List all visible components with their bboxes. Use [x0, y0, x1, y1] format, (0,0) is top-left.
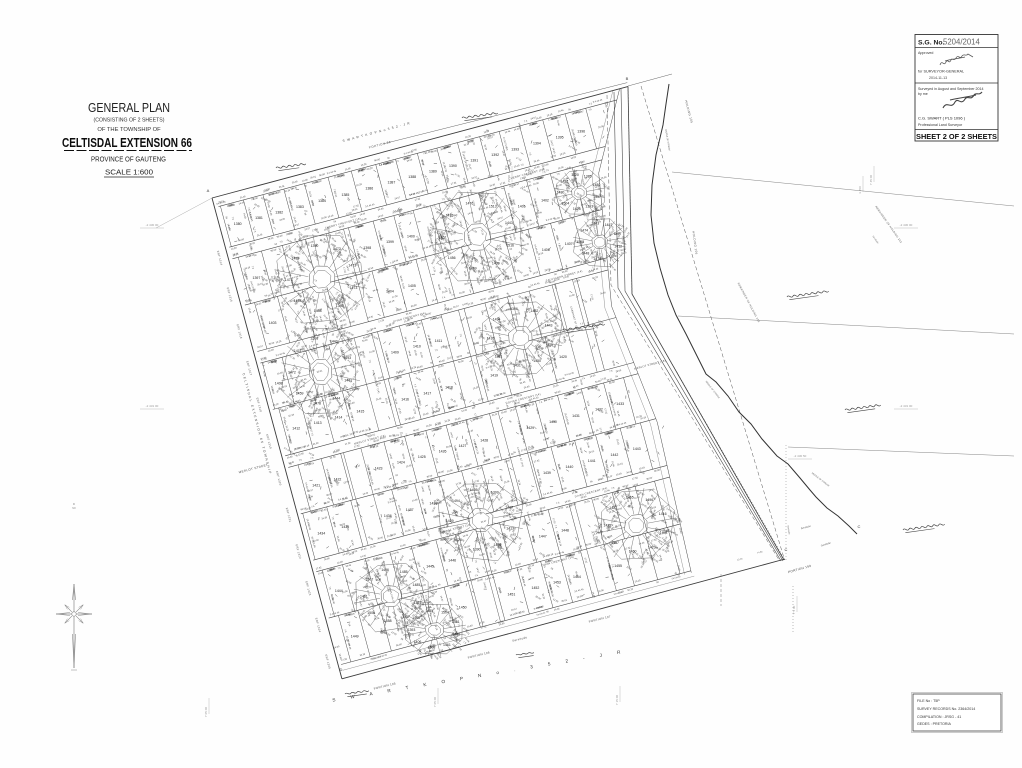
- svg-text:1421: 1421: [312, 483, 320, 487]
- svg-text:Y 5 00: Y 5 00: [792, 605, 796, 614]
- svg-text:1504: 1504: [441, 611, 449, 615]
- svg-text:1469: 1469: [469, 267, 477, 271]
- svg-text:1452: 1452: [439, 235, 447, 239]
- svg-text:1386: 1386: [365, 187, 373, 191]
- svg-text:2014-11-13: 2014-11-13: [929, 76, 947, 80]
- svg-text:1445: 1445: [426, 565, 434, 569]
- svg-text:SCALE 1:600: SCALE 1:600: [105, 170, 153, 177]
- svg-text:1450: 1450: [459, 606, 467, 610]
- svg-text:1412: 1412: [614, 245, 622, 249]
- svg-text:1439: 1439: [492, 262, 500, 266]
- svg-text:1419: 1419: [490, 374, 498, 378]
- svg-text:1455: 1455: [614, 564, 622, 568]
- svg-text:1434: 1434: [317, 532, 325, 536]
- svg-text:1420: 1420: [559, 355, 567, 359]
- svg-text:1440: 1440: [566, 465, 574, 469]
- svg-text:1388: 1388: [408, 175, 416, 179]
- svg-text:1487: 1487: [605, 223, 613, 227]
- svg-text:1423: 1423: [648, 545, 656, 549]
- svg-text:1405: 1405: [470, 488, 478, 492]
- svg-text:1516: 1516: [506, 244, 514, 248]
- svg-text:1384: 1384: [413, 601, 421, 605]
- svg-text:1474: 1474: [580, 228, 588, 232]
- svg-text:1485: 1485: [425, 609, 433, 613]
- svg-text:1485: 1485: [400, 570, 408, 574]
- svg-text:PROVINCE OF GAUTENG: PROVINCE OF GAUTENG: [91, 155, 166, 164]
- svg-text:1402: 1402: [541, 198, 549, 202]
- svg-text:1428: 1428: [454, 538, 462, 542]
- svg-text:D: D: [340, 667, 343, 672]
- svg-text:NO: NO: [72, 507, 76, 510]
- svg-text:1450: 1450: [533, 359, 541, 363]
- svg-text:1493: 1493: [343, 356, 351, 360]
- svg-text:1443: 1443: [505, 221, 513, 225]
- svg-text:1516: 1516: [310, 337, 318, 341]
- svg-text:1441: 1441: [344, 379, 352, 383]
- svg-text:1499: 1499: [292, 256, 300, 260]
- svg-text:1408: 1408: [275, 382, 283, 386]
- svg-text:1384: 1384: [318, 199, 326, 203]
- svg-text:1416: 1416: [401, 397, 409, 401]
- svg-text:1444: 1444: [332, 397, 340, 401]
- svg-text:1473: 1473: [348, 264, 356, 268]
- svg-text:1429: 1429: [446, 519, 454, 523]
- svg-text:1401: 1401: [518, 205, 526, 209]
- svg-text:1413: 1413: [506, 526, 514, 530]
- svg-text:1476: 1476: [466, 201, 474, 205]
- svg-text:1496: 1496: [645, 498, 653, 502]
- svg-text:1472: 1472: [288, 370, 296, 374]
- svg-text:1394: 1394: [533, 142, 541, 146]
- svg-text:Y 05 00: Y 05 00: [433, 697, 437, 708]
- svg-text:1428: 1428: [480, 438, 488, 442]
- svg-text:1473: 1473: [350, 286, 358, 290]
- svg-text:1507: 1507: [366, 578, 374, 582]
- svg-text:1416: 1416: [659, 512, 667, 516]
- svg-text:-2 430 50: -2 430 50: [794, 454, 807, 458]
- svg-text:-2 430 00: -2 430 00: [146, 223, 159, 227]
- svg-text:1443: 1443: [633, 447, 641, 451]
- svg-text:by me: by me: [918, 92, 928, 96]
- svg-text:1406: 1406: [542, 248, 550, 252]
- svg-text:1448: 1448: [561, 529, 569, 533]
- svg-text:1411: 1411: [294, 349, 302, 353]
- svg-text:5204/2014: 5204/2014: [943, 38, 981, 47]
- svg-text:1393: 1393: [585, 204, 593, 208]
- svg-text:1396: 1396: [510, 307, 518, 311]
- svg-text:1449: 1449: [351, 635, 359, 639]
- svg-text:1424: 1424: [397, 461, 405, 465]
- svg-text:Y 45 00: Y 45 00: [507, 175, 511, 186]
- svg-text:A: A: [207, 188, 210, 193]
- svg-text:1423: 1423: [375, 467, 383, 471]
- svg-text:1438: 1438: [430, 502, 438, 506]
- svg-text:1404: 1404: [386, 290, 394, 294]
- svg-text:1447: 1447: [539, 534, 547, 538]
- svg-text:1480: 1480: [557, 191, 565, 195]
- svg-text:1426: 1426: [439, 450, 447, 454]
- svg-text:1395: 1395: [556, 136, 564, 140]
- svg-text:1380: 1380: [234, 222, 242, 226]
- svg-text:1465: 1465: [626, 496, 634, 500]
- svg-text:C: C: [858, 524, 861, 529]
- svg-text:1439: 1439: [543, 471, 551, 475]
- svg-text:1410: 1410: [413, 345, 421, 349]
- svg-text:1381: 1381: [495, 354, 503, 358]
- svg-text:1430: 1430: [549, 420, 557, 424]
- svg-text:1468: 1468: [412, 616, 420, 620]
- svg-text:S.G. No.: S.G. No.: [918, 40, 945, 47]
- svg-text:1431: 1431: [513, 363, 521, 367]
- svg-text:1393: 1393: [576, 240, 584, 244]
- svg-text:1494: 1494: [493, 318, 501, 322]
- svg-text:1467: 1467: [505, 506, 513, 510]
- svg-text:1461: 1461: [443, 643, 451, 647]
- svg-text:1427: 1427: [609, 506, 617, 510]
- svg-text:1422: 1422: [334, 478, 342, 482]
- svg-text:1381: 1381: [255, 216, 263, 220]
- svg-text:1432: 1432: [595, 408, 603, 412]
- svg-text:1441: 1441: [660, 531, 668, 535]
- svg-text:1442: 1442: [611, 453, 619, 457]
- svg-text:1456: 1456: [560, 179, 568, 183]
- svg-text:1473: 1473: [333, 247, 341, 251]
- svg-text:1390: 1390: [311, 244, 319, 248]
- svg-text:Approved: Approved: [918, 51, 933, 55]
- svg-text:3 450: 3 450: [858, 186, 862, 194]
- svg-text:1390: 1390: [473, 548, 481, 552]
- svg-text:1417: 1417: [423, 392, 431, 396]
- svg-text:1456: 1456: [448, 256, 456, 260]
- svg-text:1409: 1409: [391, 350, 399, 354]
- svg-text:1416: 1416: [487, 336, 495, 340]
- svg-text:1391: 1391: [470, 158, 478, 162]
- svg-text:1392: 1392: [491, 153, 499, 157]
- svg-text:-2 431 00: -2 431 00: [146, 404, 159, 408]
- svg-text:1385: 1385: [584, 174, 592, 178]
- svg-text:1452: 1452: [532, 586, 540, 590]
- svg-text:1437: 1437: [593, 195, 601, 199]
- svg-text:1443: 1443: [545, 324, 553, 328]
- svg-text:1497: 1497: [546, 343, 554, 347]
- svg-text:Y 05 00: Y 05 00: [204, 707, 208, 718]
- svg-text:1397: 1397: [611, 541, 619, 545]
- svg-text:1476: 1476: [593, 257, 601, 261]
- svg-text:1448: 1448: [582, 251, 590, 255]
- svg-text:Y 15 00: Y 15 00: [615, 695, 619, 706]
- svg-text:1444: 1444: [335, 589, 343, 593]
- svg-text:SHEET 2 OF 2 SHEETS: SHEET 2 OF 2 SHEETS: [916, 132, 997, 141]
- svg-text:FILE No : T5P: FILE No : T5P: [917, 699, 940, 703]
- svg-text:1399: 1399: [386, 240, 394, 244]
- svg-text:1398: 1398: [363, 246, 371, 250]
- svg-text:1410: 1410: [494, 543, 502, 547]
- svg-text:1407: 1407: [565, 242, 573, 246]
- svg-text:1390: 1390: [449, 164, 457, 168]
- svg-text:1497: 1497: [614, 232, 622, 236]
- svg-text:(CONSISTING OF 2 SHEETS): (CONSISTING OF 2 SHEETS): [94, 118, 165, 124]
- svg-text:1418: 1418: [445, 386, 453, 390]
- svg-text:Professional Land Surveyor: Professional Land Surveyor: [918, 123, 963, 127]
- svg-text:1411: 1411: [435, 339, 443, 343]
- svg-text:1403: 1403: [269, 321, 277, 325]
- svg-text:-2 431 00: -2 431 00: [900, 404, 913, 408]
- svg-text:1436: 1436: [384, 514, 392, 518]
- svg-text:1473: 1473: [285, 278, 293, 282]
- svg-text:1387: 1387: [388, 181, 396, 185]
- svg-text:1389: 1389: [429, 170, 437, 174]
- svg-text:1480: 1480: [593, 183, 601, 187]
- svg-text:1433: 1433: [616, 402, 624, 406]
- svg-text:1508: 1508: [367, 611, 375, 615]
- svg-text:1425: 1425: [573, 207, 581, 211]
- svg-text:for SURVEYOR-GENERAL: for SURVEYOR-GENERAL: [918, 70, 964, 74]
- svg-text:1494: 1494: [452, 499, 460, 503]
- svg-text:1478: 1478: [313, 402, 321, 406]
- svg-text:C: C: [785, 547, 788, 552]
- svg-text:1508: 1508: [428, 646, 436, 650]
- svg-text:1408: 1408: [314, 309, 322, 313]
- svg-text:1427: 1427: [459, 444, 467, 448]
- svg-text:1460: 1460: [629, 550, 637, 554]
- svg-text:1429: 1429: [526, 426, 534, 430]
- svg-text:1393: 1393: [408, 628, 416, 632]
- svg-text:1513: 1513: [489, 204, 497, 208]
- svg-text:1440: 1440: [330, 339, 338, 343]
- svg-text:1457: 1457: [402, 615, 410, 619]
- svg-text:1412: 1412: [292, 427, 300, 431]
- svg-text:1400: 1400: [407, 234, 415, 238]
- svg-text:1405: 1405: [408, 284, 416, 288]
- svg-text:1399: 1399: [491, 491, 499, 495]
- svg-text:1453: 1453: [553, 580, 561, 584]
- svg-text:1415: 1415: [446, 214, 454, 218]
- svg-text:1393: 1393: [511, 147, 519, 151]
- svg-text:1393: 1393: [336, 304, 344, 308]
- svg-text:1459: 1459: [296, 391, 304, 395]
- svg-text:1454: 1454: [573, 575, 581, 579]
- svg-text:-2 430 00: -2 430 00: [900, 223, 913, 227]
- svg-text:GENERAL PLAN: GENERAL PLAN: [88, 101, 170, 115]
- svg-text:C.G. SWART ( PLS 1096 ): C.G. SWART ( PLS 1096 ): [918, 116, 966, 121]
- svg-text:1425: 1425: [418, 455, 426, 459]
- svg-text:SURVEY RECORDS No. 2364/2014: SURVEY RECORDS No. 2364/2014: [917, 707, 975, 711]
- svg-text:1385: 1385: [342, 193, 350, 197]
- svg-text:1422: 1422: [604, 524, 612, 528]
- svg-text:1397: 1397: [253, 276, 261, 280]
- svg-text:Y 45 00: Y 45 00: [869, 175, 873, 186]
- svg-text:B: B: [626, 76, 629, 81]
- svg-text:1482: 1482: [531, 309, 539, 313]
- svg-text:1411: 1411: [360, 595, 368, 599]
- svg-text:1485: 1485: [413, 583, 421, 587]
- svg-text:OF THE TOWNSHIP OF: OF THE TOWNSHIP OF: [97, 127, 161, 133]
- svg-text:1441: 1441: [588, 459, 596, 463]
- svg-text:1415: 1415: [357, 409, 365, 413]
- svg-text:CELTISDAL EXTENSION 66: CELTISDAL EXTENSION 66: [62, 135, 192, 150]
- svg-text:1458: 1458: [384, 619, 392, 623]
- svg-text:1437: 1437: [406, 508, 414, 512]
- svg-text:GEDES : PRETORIA: GEDES : PRETORIA: [917, 722, 951, 726]
- svg-text:1382: 1382: [275, 211, 283, 215]
- svg-text:1396: 1396: [577, 130, 585, 134]
- svg-text:1431: 1431: [572, 414, 580, 418]
- svg-text:1478: 1478: [294, 299, 302, 303]
- svg-text:1435: 1435: [341, 525, 349, 529]
- svg-text:1504: 1504: [562, 202, 570, 206]
- svg-text:1496: 1496: [381, 568, 389, 572]
- svg-text:1413: 1413: [314, 421, 322, 425]
- svg-text:1420: 1420: [571, 173, 579, 177]
- svg-text:1414: 1414: [335, 415, 343, 419]
- svg-text:1451: 1451: [508, 593, 516, 597]
- svg-text:1446: 1446: [448, 559, 456, 563]
- svg-text:1406: 1406: [414, 640, 422, 644]
- svg-text:COMPILATION : JRSG - 41: COMPILATION : JRSG - 41: [917, 715, 961, 719]
- svg-text:1383: 1383: [296, 205, 304, 209]
- svg-text:1451: 1451: [452, 620, 460, 624]
- svg-text:Surveyed in August and Septemb: Surveyed in August and September 2014: [918, 87, 984, 91]
